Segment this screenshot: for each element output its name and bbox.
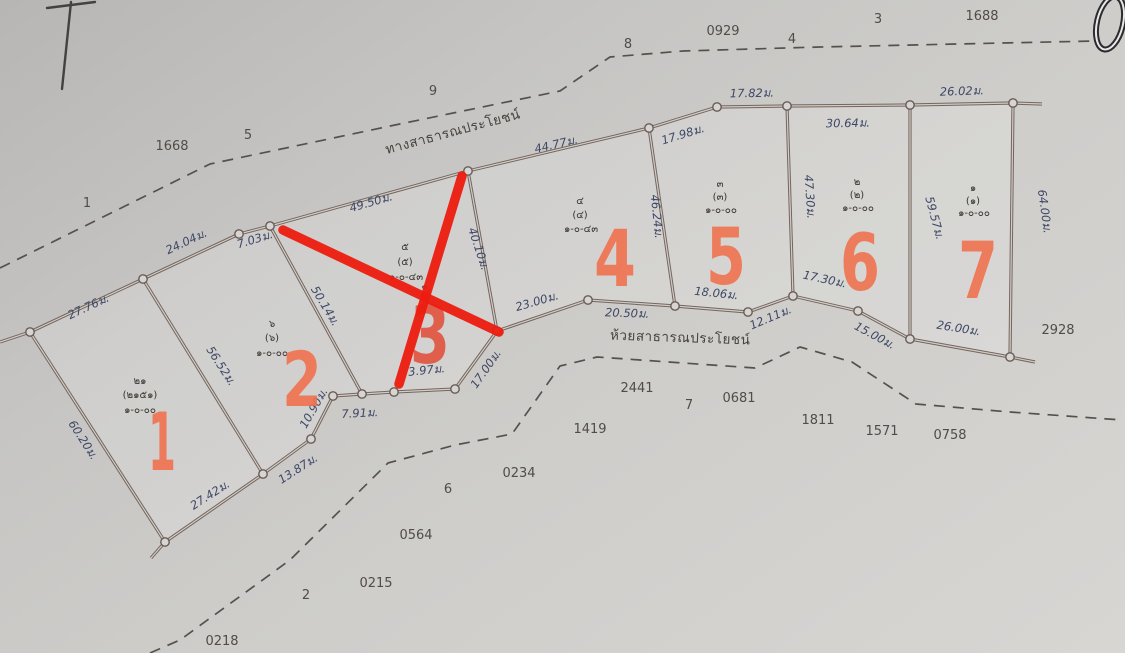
survey-number: 1668 (155, 139, 188, 154)
boundary-vertex (744, 308, 752, 316)
north-mark (47, 2, 95, 89)
boundary-vertex (358, 390, 366, 398)
dimension-label: 26.02ม. (940, 83, 985, 99)
survey-number: 0564 (399, 528, 432, 543)
deed-line: ๔ (576, 196, 584, 207)
survey-number: 4 (788, 32, 796, 47)
plot-overlay-number: 2 (282, 335, 322, 424)
boundary-vertex (390, 388, 398, 396)
deed-line: (๕) (397, 257, 412, 268)
survey-number: 1811 (801, 413, 834, 428)
boundary-vertex (1009, 99, 1017, 107)
survey-number: 0215 (359, 576, 392, 591)
deed-line: (๔) (572, 210, 587, 221)
boundary-vertex (713, 103, 721, 111)
plot-overlay-number: 6 (840, 219, 880, 309)
survey-number: 0218 (205, 634, 238, 649)
dimension-label: 20.50ม. (605, 305, 650, 321)
plot-overlay-number: 4 (594, 215, 636, 305)
deed-line: (๑) (966, 196, 980, 207)
boundary-vertex (783, 102, 791, 110)
deed-line: ๑-๐-๐๐ (842, 203, 874, 214)
boundary-vertex (1006, 353, 1014, 361)
survey-drawing: 27.76ม. 24.04ม. 7.03ม. 49.50ม. 44.77ม. 1… (0, 0, 1125, 653)
deed-line: ๖ (269, 319, 275, 330)
survey-number: 0758 (933, 428, 966, 443)
boundary-vertex (906, 335, 914, 343)
survey-number: 2928 (1041, 323, 1074, 338)
survey-number: 1571 (865, 424, 898, 439)
survey-number: 2441 (620, 381, 653, 396)
survey-number: 3 (874, 12, 882, 27)
survey-number: 2 (302, 588, 310, 603)
survey-number: 1419 (573, 422, 606, 437)
boundary-vertex (789, 292, 797, 300)
survey-number: 0234 (502, 466, 535, 481)
deed-line: (๖) (265, 333, 279, 344)
deed-line: ๓ (717, 179, 724, 190)
metal-ring (1091, 0, 1125, 52)
boundary-vertex (26, 328, 34, 336)
deed-line: ๑-๐-๐๐ (958, 208, 990, 219)
deed-line: ๑ (970, 183, 976, 194)
boundary-vertex (139, 275, 147, 283)
survey-map-photo: 27.76ม. 24.04ม. 7.03ม. 49.50ม. 44.77ม. 1… (0, 0, 1125, 653)
survey-number: 1688 (965, 9, 998, 24)
survey-number: 0929 (706, 24, 739, 39)
survey-number: 7 (685, 398, 693, 413)
dimension-label: 7.91ม. (341, 405, 379, 421)
survey-number: 8 (624, 37, 632, 52)
boundary-vertex (259, 470, 267, 478)
survey-number: 6 (444, 482, 452, 497)
dimension-label: 64.00ม. (1035, 189, 1055, 235)
deed-line: (๒) (850, 190, 864, 201)
boundary-vertex (161, 538, 169, 546)
deed-line: ๒๑ (134, 376, 147, 387)
survey-number: 5 (244, 128, 252, 143)
survey-number: 0681 (722, 391, 755, 406)
plot-overlay-number: 7 (958, 227, 998, 317)
deed-line: (๓) (713, 192, 728, 203)
deed-line: ๕ (401, 242, 409, 253)
deed-line: ๒ (854, 177, 861, 188)
boundary-vertex (451, 385, 459, 393)
boundary-vertex (584, 296, 592, 304)
plot-overlay-number: 1 (148, 396, 176, 489)
stream-name-label: ห้วยสาธารณประโยชน์ (610, 327, 751, 349)
plot-overlay-number: 5 (706, 213, 746, 303)
boundary-vertex (906, 101, 914, 109)
boundary-vertex (671, 302, 679, 310)
dimension-label: 17.82ม. (730, 86, 774, 101)
survey-number: 1 (83, 196, 91, 211)
dimension-label: 30.64ม. (826, 116, 870, 131)
survey-number: 9 (429, 84, 437, 99)
boundary-vertex (307, 435, 315, 443)
boundary-vertex (645, 124, 653, 132)
